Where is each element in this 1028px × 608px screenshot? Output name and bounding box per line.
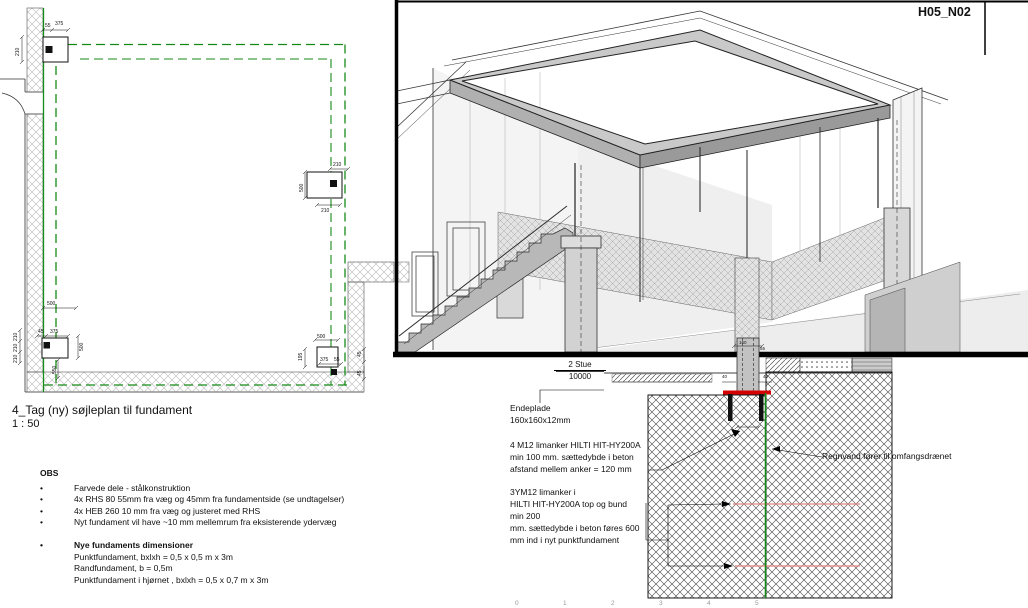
steel-column-marker (46, 46, 53, 53)
bullet-marker: • (40, 540, 74, 552)
anchor-bolt (728, 394, 733, 421)
dim-label: 3 (659, 600, 663, 607)
plan-title: 4_Tag (ny) søjleplan til fundament (12, 403, 192, 417)
wall-band-bottom (27, 372, 364, 392)
dim-label: 210 (13, 354, 19, 363)
annotation-line: afstand mellem anker = 120 mm (510, 464, 641, 476)
dim-label: 1 (563, 600, 567, 607)
note-bullet-row: • 4x HEB 260 10 mm fra væg og justeret m… (40, 506, 380, 518)
annotation-line: min 200 (510, 511, 639, 523)
note-text: Nyt fundament vil have ~10 mm mellemrum … (74, 517, 336, 529)
notes-block: OBS • Farvede dele - stålkonstruktion • … (40, 468, 380, 586)
annotation-endeplade: Endeplade160x160x12mm (510, 403, 570, 427)
steel-outline-green (44, 8, 348, 392)
notes-list: • Farvede dele - stålkonstruktion • 4x R… (40, 483, 380, 529)
wall-band-stub (348, 262, 394, 282)
dim-label: 5 (755, 600, 759, 607)
wall-band-right (348, 282, 364, 372)
scale-ruler: 012345 (515, 600, 759, 607)
bullet-marker: • (40, 483, 74, 495)
anchor-bolt (759, 394, 764, 421)
dim-label: 195 (298, 352, 304, 361)
note-dim-line: Punktfundament, bxlxh = 0,5 x 0,5 m x 3m (74, 552, 380, 564)
note-text: 4x RHS 80 55mm fra væg og 45mm fra funda… (74, 494, 344, 506)
note-text: 4x HEB 260 10 mm fra væg og justeret med… (74, 506, 260, 518)
dim-label: 500 (299, 183, 305, 192)
note-dim-heading: Nye fundaments dimensioner (74, 540, 193, 552)
dim-label: 160 (739, 340, 747, 345)
drawing-sheet: 5537521021050021050021021021045375500550… (0, 0, 1028, 608)
dim-label: 55 (334, 357, 340, 363)
note-dim-heading-row: • Nye fundaments dimensioner (40, 540, 380, 552)
level-elevation: 10000 (554, 371, 606, 382)
annotation-line: 160x160x12mm (510, 415, 570, 427)
annotation-line: Endeplade (510, 403, 570, 415)
bullet-marker: • (40, 506, 74, 518)
dim-label: 210 (13, 343, 19, 352)
note-bullet-row: • 4x RHS 80 55mm fra væg og 45mm fra fun… (40, 494, 380, 506)
slab-hatch (612, 374, 712, 382)
dim-label: 210 (15, 47, 21, 56)
dim-label: 210 (321, 208, 330, 214)
floor-layer-strip (766, 358, 800, 372)
dim-label: 375 (50, 329, 59, 335)
note-dim-line: Punktfundament i hjørnet , bxlxh = 0,5 x… (74, 575, 380, 587)
dim-label: 55 (760, 346, 766, 351)
existing-foundation-hatch (766, 372, 892, 598)
view-3d (393, 0, 1028, 355)
level-marker: 2 Stue 10000 (554, 359, 606, 382)
dim-label: 45 (38, 329, 44, 335)
annotation-line: min 100 mm. sættedybde i beton (510, 452, 641, 464)
dim-label: 4 (707, 600, 711, 607)
dim-label: 40 (722, 374, 728, 379)
annotation-rainwater: Regnvand fører til omfangsdrænet (822, 451, 951, 461)
floor-layer-strip (852, 358, 892, 372)
column-detail-right-mid (303, 167, 350, 207)
note-text: Farvede dele - stålkonstruktion (74, 483, 190, 495)
annotation-line: mm. sættedybde i beton føres 600 (510, 523, 639, 535)
dim-label: 45 (357, 351, 363, 357)
dim-label: 550 (52, 365, 58, 374)
dim-label: 500 (317, 334, 326, 340)
door-swing-arc (2, 92, 43, 114)
dim-label: 45 (357, 370, 363, 376)
dim-label: 375 (55, 21, 64, 27)
bullet-marker: • (40, 494, 74, 506)
dim-label: 0 (515, 600, 519, 607)
bullet-marker: • (40, 517, 74, 529)
steel-column-marker (331, 369, 337, 375)
plan-scale: 1 : 50 (12, 418, 40, 430)
annotation-anchors-side: 3YM12 limanker iHILTI HIT-HY200A top og … (510, 487, 639, 547)
wall-band-left-upper (27, 8, 43, 92)
dim-label: 210 (13, 332, 19, 341)
annotation-line: 4 M12 limanker HILTI HIT-HY200A (510, 440, 641, 452)
notes-heading: OBS (40, 468, 380, 480)
new-foundation-hatch (648, 395, 766, 598)
floor-layer-strip (800, 358, 852, 372)
steel-column-marker (330, 180, 337, 187)
dim-label: 40 (763, 374, 769, 379)
dim-label: 55 (45, 23, 51, 29)
notes-dim-list: Punktfundament, bxlxh = 0,5 x 0,5 m x 3m… (74, 552, 380, 587)
note-bullet-row: • Nyt fundament vil have ~10 mm mellemru… (40, 517, 380, 529)
level-name: 2 Stue (554, 359, 606, 371)
dim-label: 2 (611, 600, 615, 607)
dim-label: 500 (79, 342, 85, 351)
view-3d-label: H05_N02 (918, 5, 971, 19)
note-bullet-row: • Farvede dele - stålkonstruktion (40, 483, 380, 495)
detail-bracket (540, 390, 604, 403)
annotation-line: 3YM12 limanker i (510, 487, 639, 499)
annotation-line: mm ind i nyt punktfundament (510, 535, 639, 547)
dim-label: 375 (320, 357, 329, 363)
annotation-anchors-top: 4 M12 limanker HILTI HIT-HY200Amin 100 m… (510, 440, 641, 476)
annotation-line: HILTI HIT-HY200A top og bund (510, 499, 639, 511)
dim-label: 210 (333, 162, 342, 168)
floor-plan: 5537521021050021050021021021045375500550… (0, 8, 394, 392)
steel-column-marker (44, 342, 51, 349)
note-dim-line: Randfundament, b = 0,5m (74, 563, 380, 575)
dim-label: 500 (47, 301, 56, 307)
